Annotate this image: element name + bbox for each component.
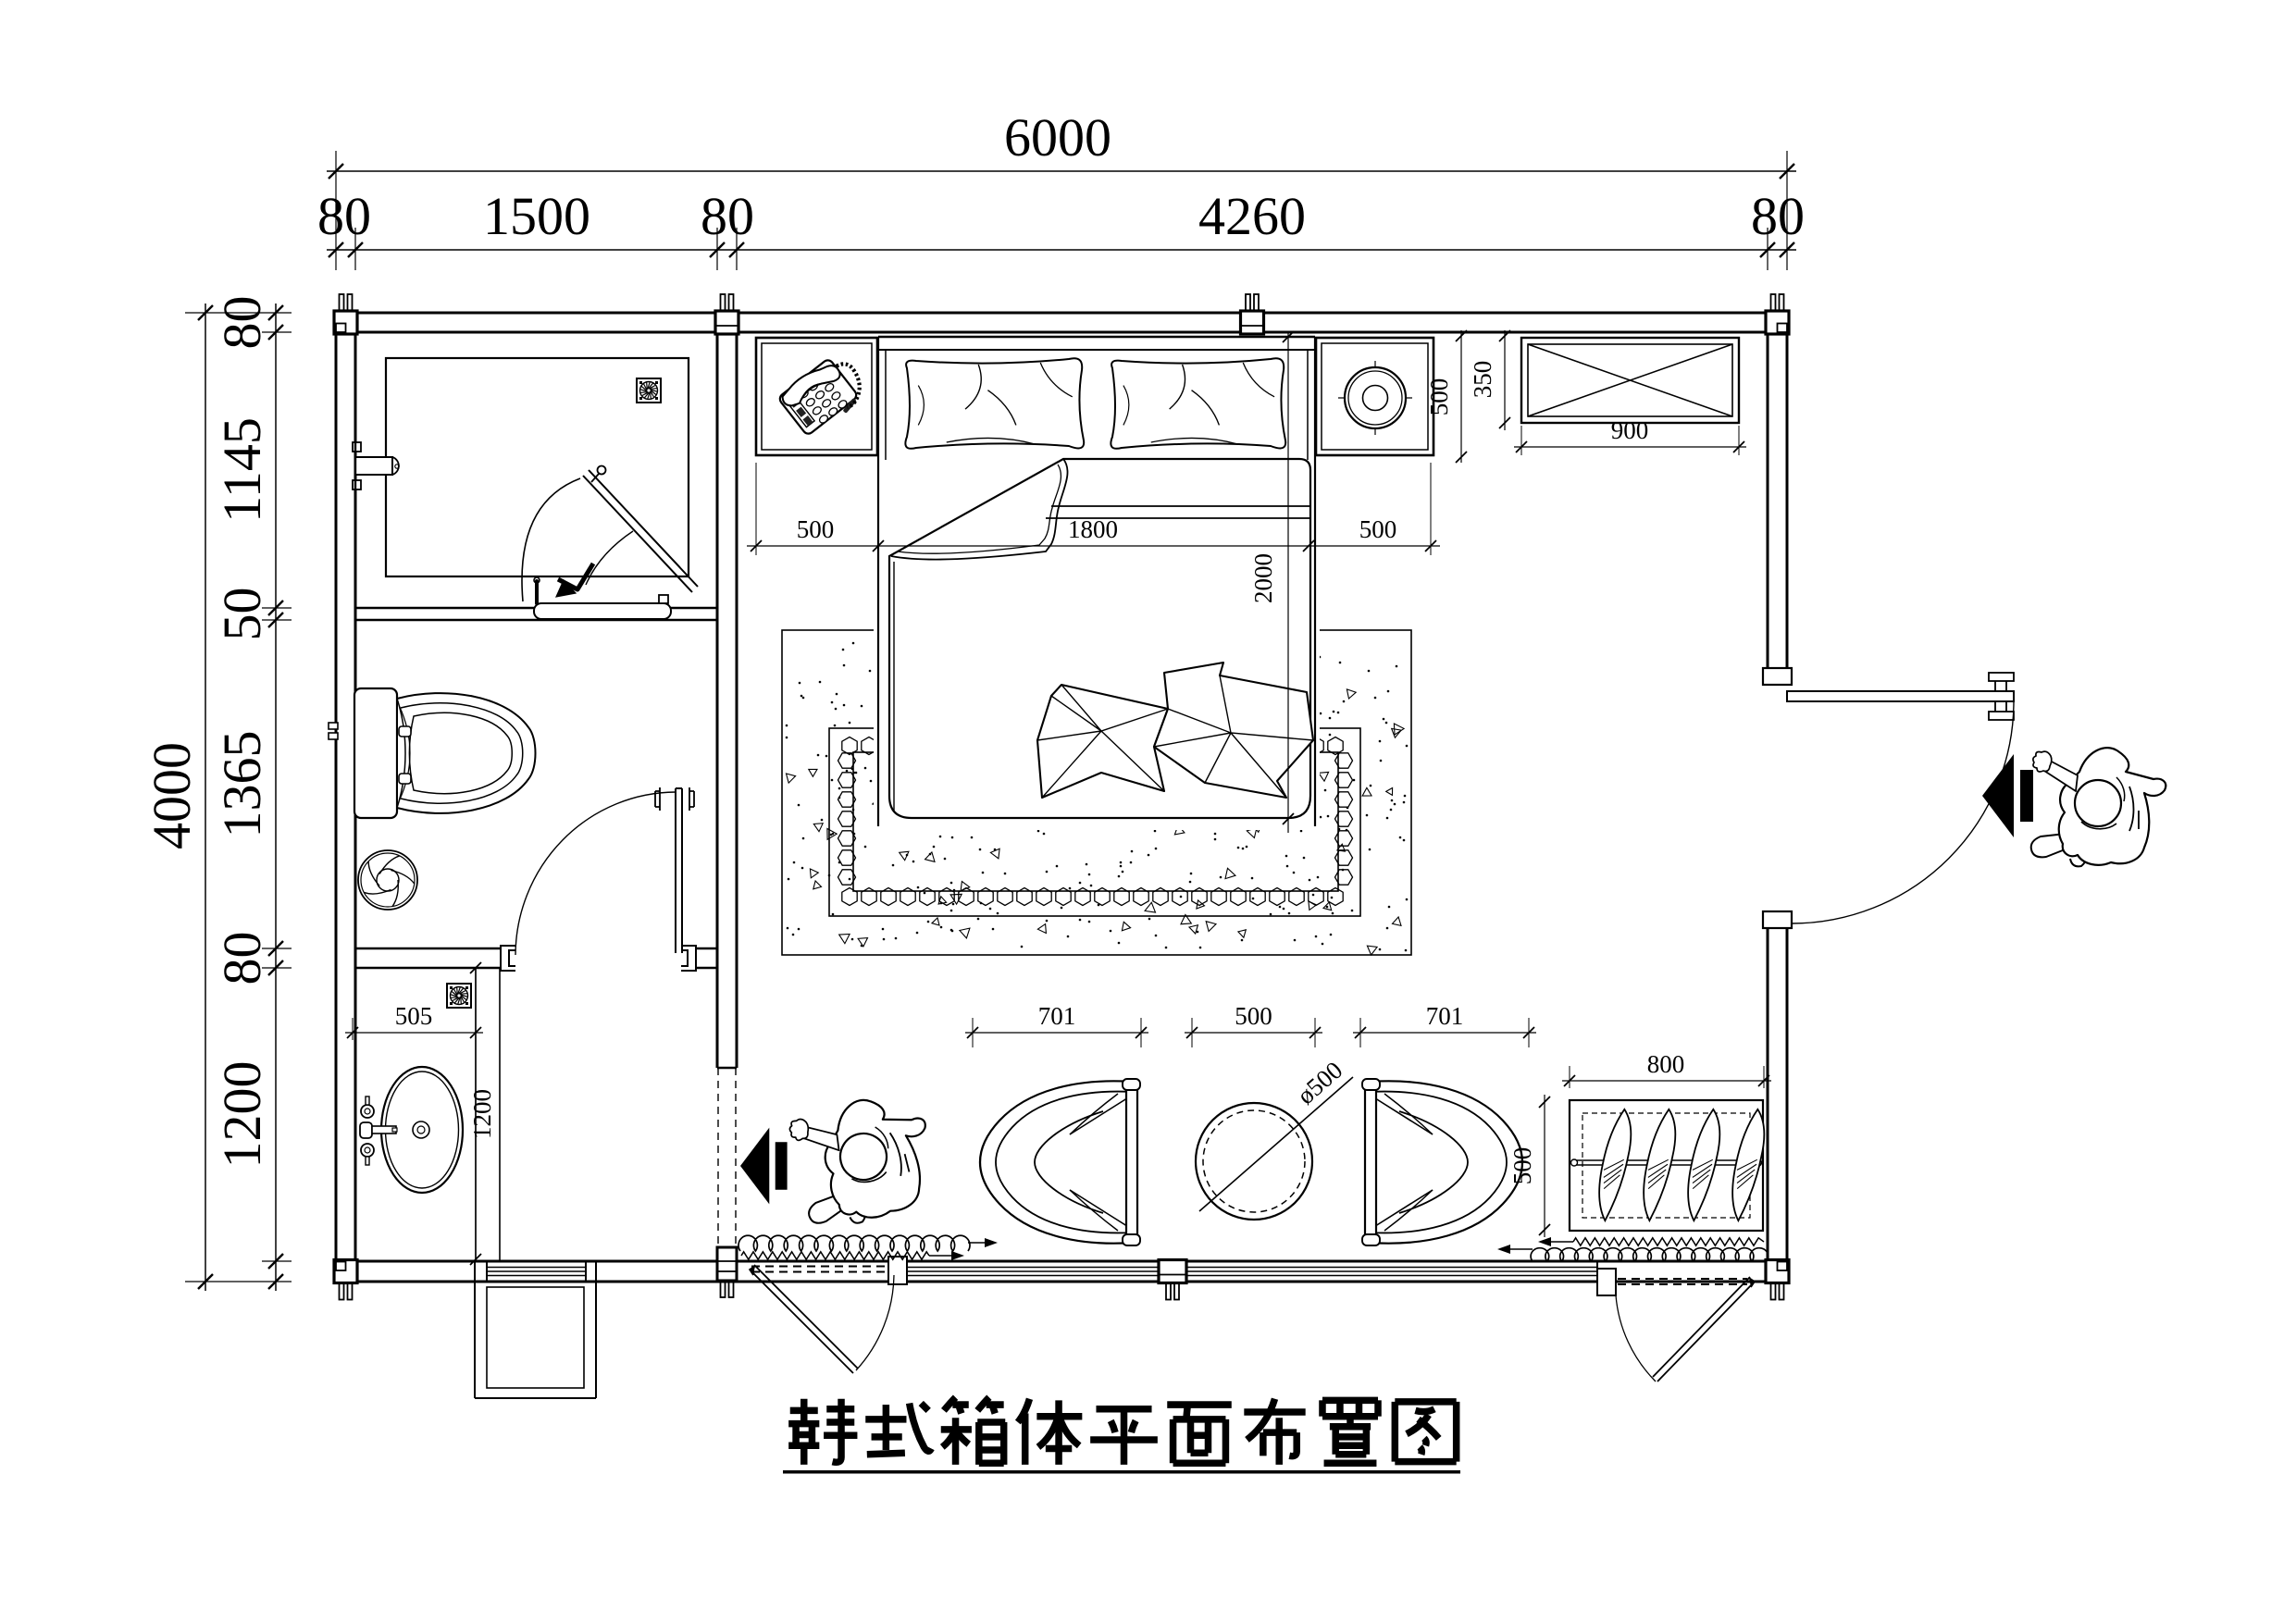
svg-text:500: 500 bbox=[1235, 1002, 1272, 1030]
svg-text:350: 350 bbox=[1469, 361, 1496, 399]
svg-text:505: 505 bbox=[395, 1002, 433, 1030]
svg-text:701: 701 bbox=[1426, 1002, 1464, 1030]
svg-text:80: 80 bbox=[1751, 186, 1805, 246]
svg-text:80: 80 bbox=[317, 186, 371, 246]
svg-text:4000: 4000 bbox=[142, 742, 202, 849]
svg-text:80: 80 bbox=[212, 296, 272, 350]
svg-text:500: 500 bbox=[1508, 1147, 1536, 1185]
svg-text:900: 900 bbox=[1611, 416, 1649, 444]
svg-text:1200: 1200 bbox=[468, 1089, 496, 1139]
svg-text:4260: 4260 bbox=[1198, 186, 1306, 246]
svg-text:1500: 1500 bbox=[483, 186, 590, 246]
svg-text:50: 50 bbox=[212, 588, 272, 641]
svg-text:80: 80 bbox=[212, 932, 272, 985]
svg-text:701: 701 bbox=[1038, 1002, 1076, 1030]
svg-text:500: 500 bbox=[797, 515, 835, 543]
svg-text:500: 500 bbox=[1359, 515, 1397, 543]
svg-text:500: 500 bbox=[1425, 378, 1453, 416]
svg-text:1145: 1145 bbox=[212, 417, 272, 523]
svg-text:2000: 2000 bbox=[1249, 553, 1277, 603]
svg-text:6000: 6000 bbox=[1004, 107, 1111, 167]
svg-text:800: 800 bbox=[1647, 1050, 1685, 1078]
svg-text:1200: 1200 bbox=[212, 1061, 272, 1169]
svg-text:80: 80 bbox=[701, 186, 754, 246]
svg-text:1365: 1365 bbox=[212, 731, 272, 838]
svg-text:1800: 1800 bbox=[1068, 515, 1118, 543]
